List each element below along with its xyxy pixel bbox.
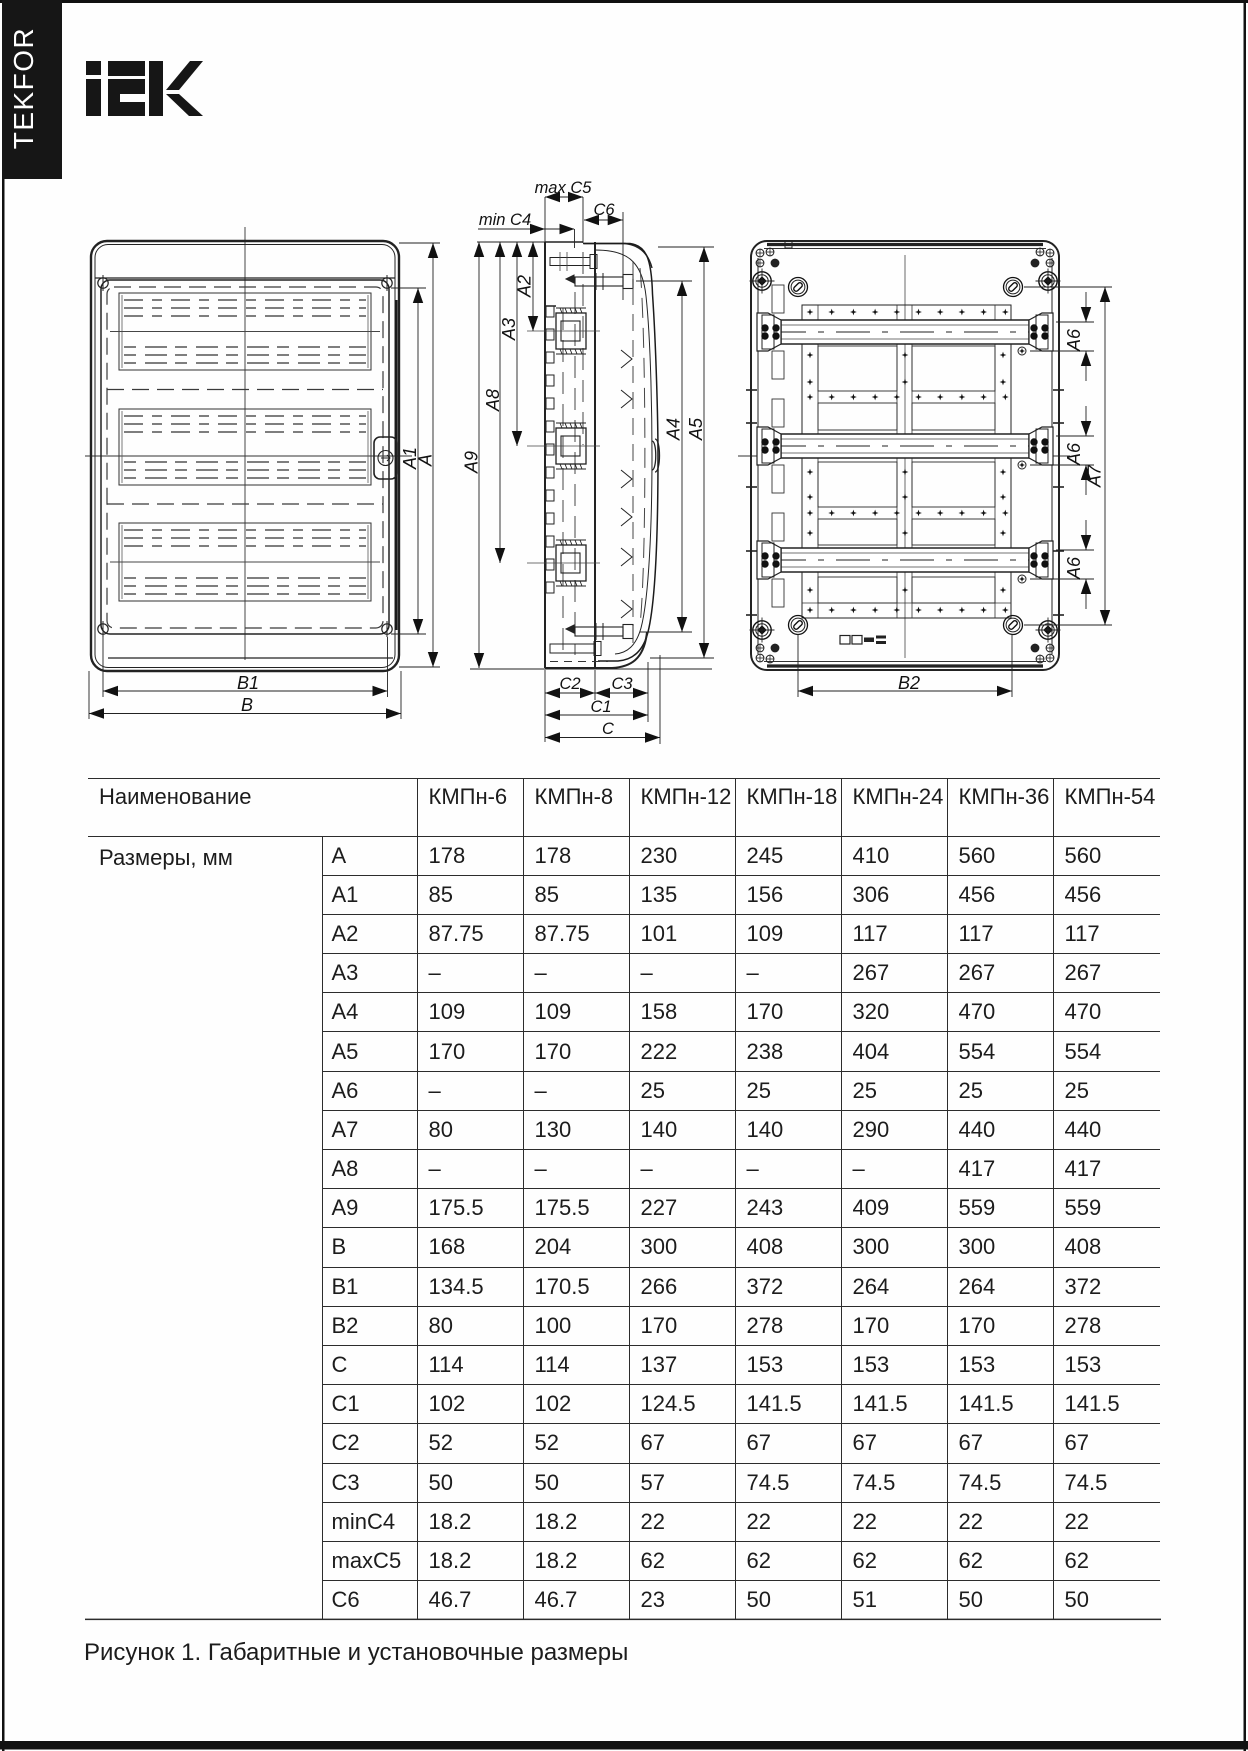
svg-text:A3: A3 <box>499 318 519 341</box>
svg-text:min C4: min C4 <box>479 211 531 229</box>
svg-text:C6: C6 <box>593 201 615 219</box>
svg-text:B1: B1 <box>237 673 259 693</box>
svg-text:A6: A6 <box>1064 442 1084 466</box>
svg-text:A: A <box>416 454 436 467</box>
svg-text:A2: A2 <box>515 275 535 298</box>
svg-text:C2: C2 <box>559 675 580 693</box>
svg-text:A6: A6 <box>1064 556 1084 580</box>
svg-text:A5: A5 <box>686 417 706 441</box>
svg-text:max C5: max C5 <box>535 179 593 197</box>
svg-text:A6: A6 <box>1064 328 1084 352</box>
svg-text:A9: A9 <box>462 451 482 474</box>
svg-text:C3: C3 <box>611 675 633 693</box>
svg-text:B: B <box>241 695 253 715</box>
svg-text:TEKFOR: TEKFOR <box>8 27 39 150</box>
svg-text:B2: B2 <box>898 673 920 693</box>
svg-text:A8: A8 <box>483 389 503 412</box>
svg-text:C1: C1 <box>590 698 611 716</box>
svg-text:C: C <box>602 720 614 738</box>
svg-text:A4: A4 <box>664 418 684 441</box>
